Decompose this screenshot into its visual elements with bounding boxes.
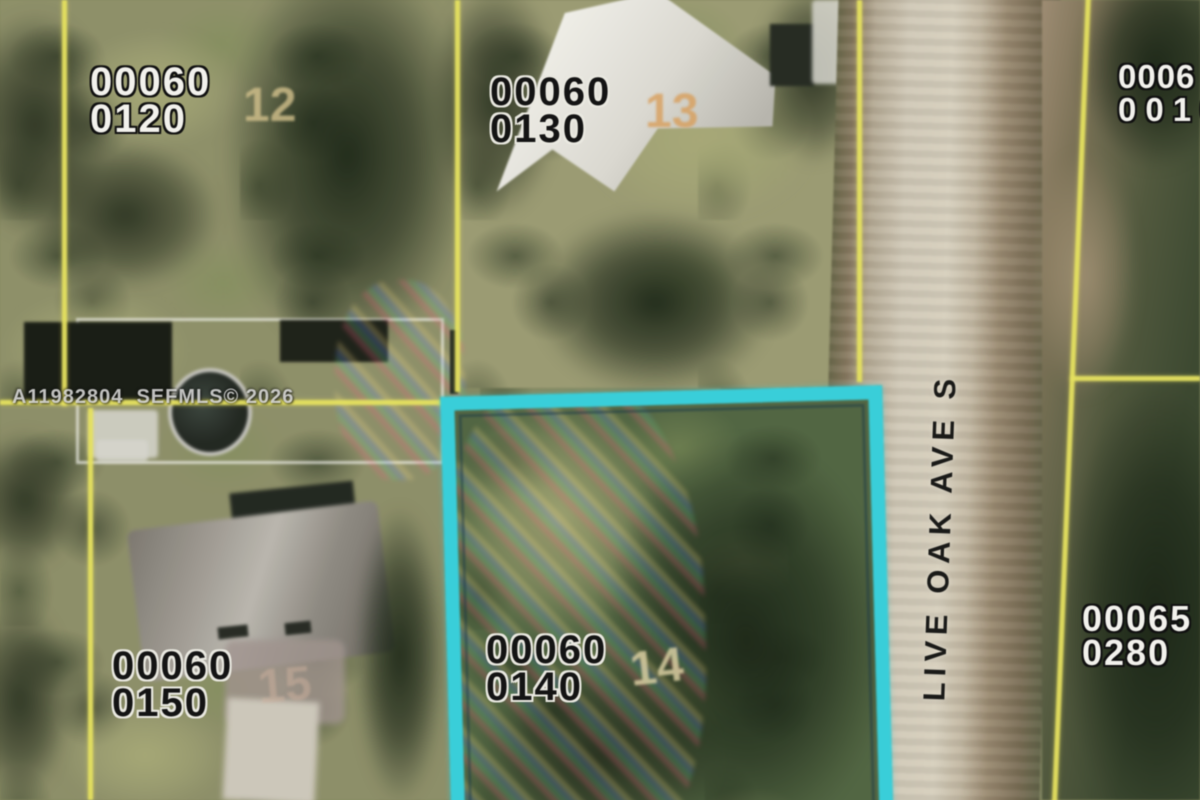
patio [96,440,148,462]
parcel-label-line1: 00060 [112,648,233,685]
parcel-label-line1: 00065 [1082,602,1192,636]
parcel-label-00060-0120: 00060 0120 [90,64,211,138]
hedge [355,505,445,800]
parcel-line-west-0120 [62,0,67,406]
lot-number-13: 13 [645,84,698,139]
parcel-label-line2: 0280 [1082,636,1192,670]
parcel-line-0010-0280 [1070,376,1200,381]
above-ground-pool [168,368,252,456]
dirt-patch [1028,150,1138,400]
parcel-label-line1: 00060 [90,64,211,101]
parcel-label-line2: 0140 [486,669,607,706]
parcel-label-line2: 0120 [90,101,211,138]
parcel-label-00065-0280: 00065 0280 [1082,602,1192,670]
parcel-line-0120-0130 [455,0,460,392]
parcel-label-00060-0130: 00060 0130 [490,74,611,148]
parcel-label-00060-0150: 00060 0150 [112,648,233,722]
parcel-label-line2: 0150 [112,685,233,722]
parcel-line-road-west [857,0,862,382]
mls-watermark: A11982804 SEFMLS© 2026 [12,386,294,409]
parcel-label-line2: 0130 [490,111,611,148]
parcel-label-00060-0140: 00060 0140 [486,632,607,706]
aerial-parcel-map: 00060 0120 12 00060 0130 13 0006 0010 00… [0,0,1200,800]
parcel-label-line1: 00060 [486,632,607,669]
parcel-label-line2: 0010 [1118,93,1200,126]
lot-number-14: 14 [627,637,686,697]
tree-canopy [535,210,775,395]
parcel-label-0010-truncated: 0006 0010 [1118,60,1200,126]
roof-dark-section [770,24,814,86]
parcel-label-line1: 00060 [490,74,611,111]
highlighted-parcel-0140-boundary [440,385,894,800]
lot-number-12: 12 [243,78,296,133]
lot-number-15: 15 [256,656,314,715]
tree-canopy [30,140,220,290]
parcel-line-west-0150 [88,408,93,800]
parcel-label-line1: 0006 [1118,60,1200,93]
